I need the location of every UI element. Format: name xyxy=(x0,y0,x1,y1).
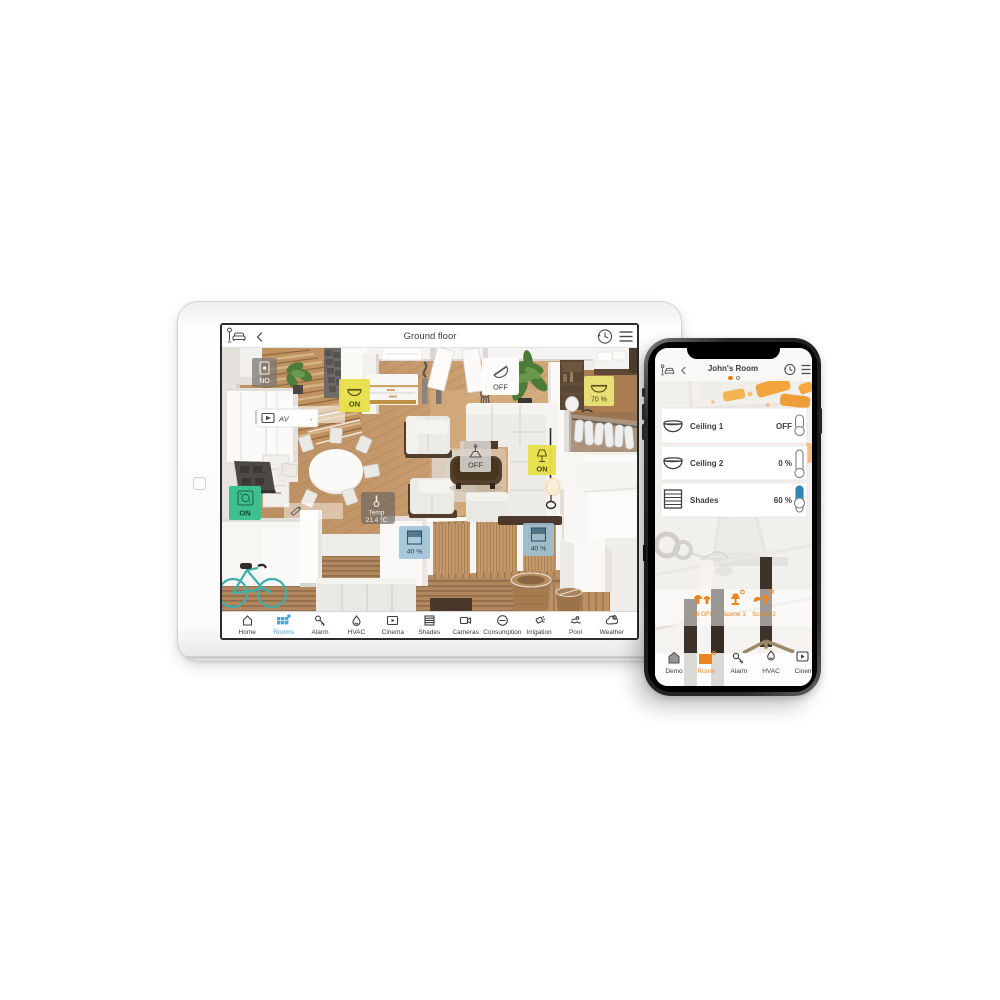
svg-text:70 %: 70 % xyxy=(591,397,607,404)
svg-text:Alarm: Alarm xyxy=(731,668,748,675)
svg-text:40 %: 40 % xyxy=(407,549,423,556)
svg-text:NO: NO xyxy=(259,378,270,385)
svg-text:Scene 1: Scene 1 xyxy=(722,611,746,618)
svg-text:21.4 °C: 21.4 °C xyxy=(366,516,388,524)
svg-text:Demo: Demo xyxy=(665,668,683,675)
svg-text:ON: ON xyxy=(349,400,360,409)
svg-text:All OFF: All OFF xyxy=(692,611,714,618)
svg-text:Room: Room xyxy=(697,668,714,675)
svg-text:Shades: Shades xyxy=(690,496,719,505)
svg-text:Temp: Temp xyxy=(369,510,385,517)
svg-text:Ceiling 1: Ceiling 1 xyxy=(690,422,724,431)
svg-text:ON: ON xyxy=(239,509,250,518)
svg-text:OFF: OFF xyxy=(776,422,792,431)
svg-text:Ceiling 2: Ceiling 2 xyxy=(690,459,724,468)
svg-text:40 %: 40 % xyxy=(531,546,547,553)
svg-text:AV: AV xyxy=(278,415,290,424)
svg-text:HVAC: HVAC xyxy=(762,668,780,675)
svg-text:Cinem: Cinem xyxy=(795,668,812,675)
svg-text:60 %: 60 % xyxy=(774,496,792,505)
svg-text:0 %: 0 % xyxy=(778,459,792,468)
svg-text:ON: ON xyxy=(536,465,547,474)
svg-text:Scene 2: Scene 2 xyxy=(752,611,776,618)
svg-text:OFF: OFF xyxy=(493,383,508,392)
svg-text:OFF: OFF xyxy=(468,461,483,470)
